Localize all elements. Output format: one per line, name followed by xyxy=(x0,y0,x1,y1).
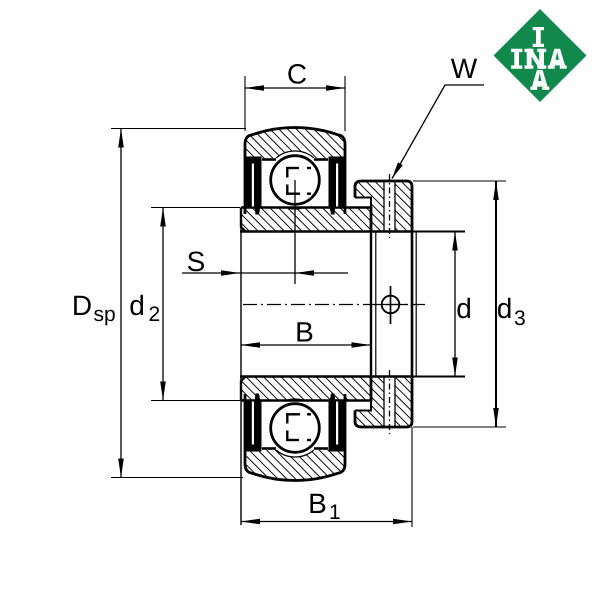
svg-text:3: 3 xyxy=(514,307,526,330)
svg-text:d: d xyxy=(129,290,145,321)
svg-text:B: B xyxy=(295,317,314,348)
svg-text:C: C xyxy=(287,59,307,90)
svg-text:2: 2 xyxy=(149,303,161,326)
svg-text:d: d xyxy=(456,293,472,324)
svg-text:S: S xyxy=(187,246,206,277)
svg-text:1: 1 xyxy=(329,501,341,524)
svg-text:B: B xyxy=(308,488,327,519)
svg-text:sp: sp xyxy=(94,303,116,326)
svg-text:D: D xyxy=(72,290,92,321)
svg-text:W: W xyxy=(451,53,478,84)
svg-text:d: d xyxy=(497,293,513,324)
